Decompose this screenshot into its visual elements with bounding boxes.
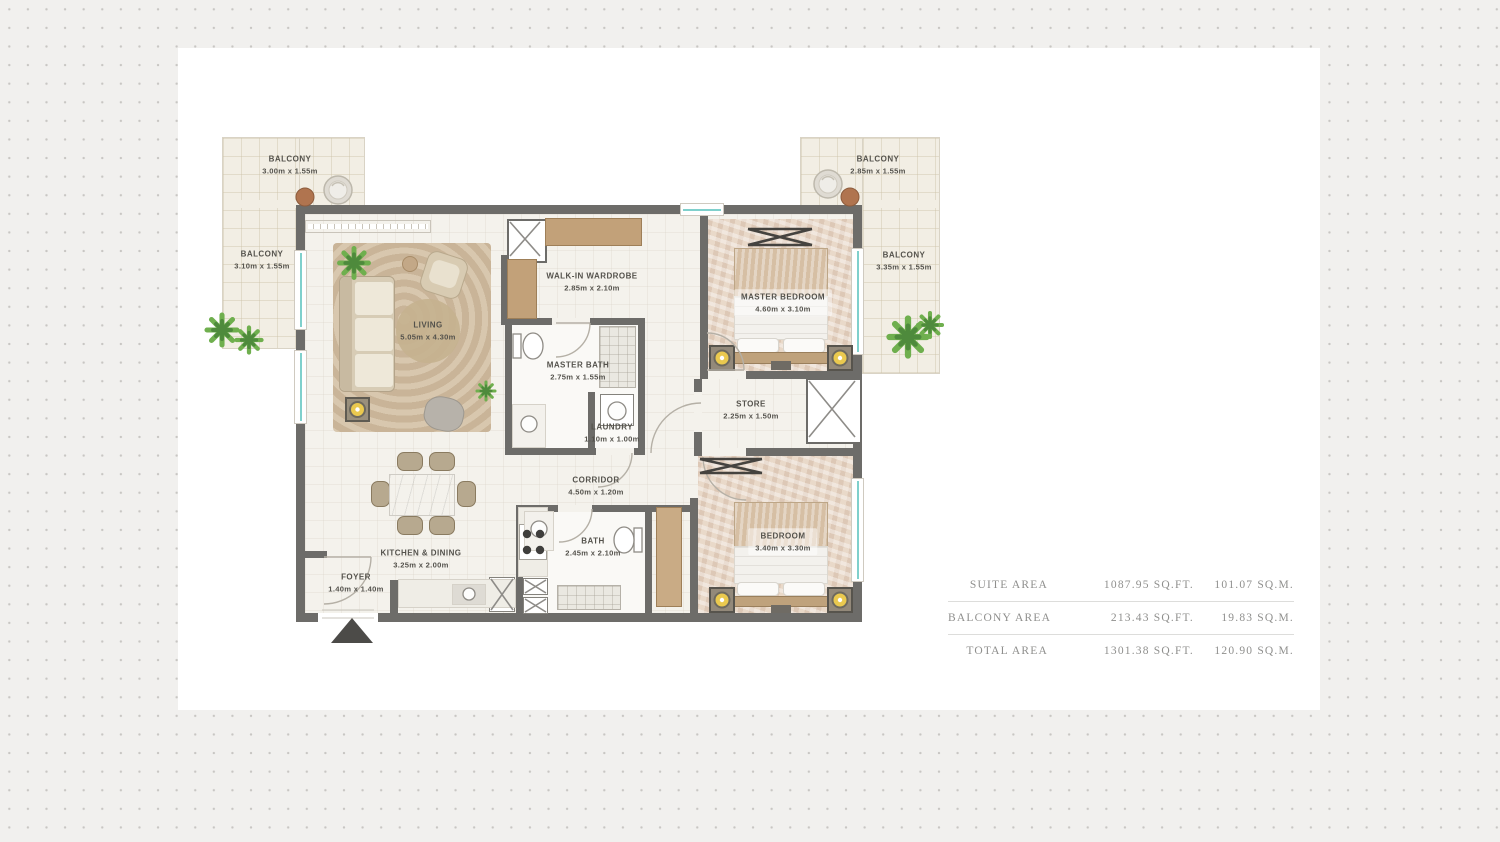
bed-pedestal	[771, 605, 791, 613]
cabinet-box	[523, 597, 548, 614]
sofa-cushion	[354, 317, 394, 352]
room-name: MASTER BEDROOM	[741, 292, 825, 301]
wall	[645, 505, 652, 613]
shower	[557, 585, 621, 610]
duct-shaft	[507, 219, 547, 263]
elevator-shaft	[806, 378, 862, 444]
dining-chair	[429, 516, 455, 535]
room-dims: 3.00m x 1.55m	[262, 165, 317, 176]
nightstand	[709, 345, 735, 371]
room-dims: 2.75m x 1.55m	[547, 371, 610, 382]
dining-table	[389, 474, 455, 516]
balcony-chair-icon	[324, 170, 842, 204]
room-label-foyer: FOYER 1.40m x 1.40m	[328, 571, 383, 594]
wall	[722, 205, 862, 214]
room-name: WALK-IN WARDROBE	[546, 271, 637, 280]
room-label-balcony-3: BALCONY 2.85m x 1.55m	[850, 153, 905, 176]
area-sqft: 1301.38 SQ.FT.	[1048, 645, 1194, 657]
table-row: BALCONY AREA 213.43 SQ.FT. 19.83 SQ.M.	[948, 601, 1294, 634]
nightstand	[827, 587, 853, 613]
pillow	[783, 582, 825, 596]
room-label-bedroom: BEDROOM 3.40m x 3.30m	[748, 528, 817, 555]
room-label-living: LIVING 5.05m x 4.30m	[400, 319, 455, 342]
room-label-balcony-1: BALCONY 3.00m x 1.55m	[262, 153, 317, 176]
room-label-laundry: LAUNDRY 1.10m x 1.00m	[584, 421, 639, 444]
door-opening	[702, 448, 746, 456]
wall	[505, 318, 512, 455]
area-sqm: 19.83 SQ.M.	[1194, 612, 1294, 624]
floor-plan: BALCONY 3.00m x 1.55m BALCONY 3.10m x 1.…	[0, 0, 1500, 842]
balcony-seam	[224, 200, 296, 208]
room-label-balcony-2: BALCONY 3.10m x 1.55m	[234, 248, 289, 271]
table-row: SUITE AREA 1087.95 SQ.FT. 101.07 SQ.M.	[948, 569, 1294, 601]
wall	[690, 498, 698, 613]
table-row: TOTAL AREA 1301.38 SQ.FT. 120.90 SQ.M.	[948, 634, 1294, 667]
room-dims: 2.25m x 1.50m	[723, 410, 778, 421]
area-summary-table: SUITE AREA 1087.95 SQ.FT. 101.07 SQ.M. B…	[948, 569, 1294, 667]
window	[851, 478, 864, 582]
sofa-back	[340, 277, 352, 391]
nightstand	[709, 587, 735, 613]
room-label-store: STORE 2.25m x 1.50m	[723, 398, 778, 421]
room-label-bath: BATH 2.45m x 2.10m	[565, 535, 620, 558]
window	[294, 350, 307, 424]
room-dims: 2.85m x 2.10m	[546, 282, 637, 293]
balcony-slider-door	[305, 220, 431, 233]
room-name: MASTER BATH	[547, 360, 610, 369]
room-name: BALCONY	[269, 154, 312, 163]
room-dims: 1.10m x 1.00m	[584, 433, 639, 444]
wall	[700, 211, 708, 379]
kitchen-sink-unit	[452, 584, 486, 605]
wall	[390, 580, 398, 613]
pouf	[402, 256, 418, 272]
room-label-master-bath: MASTER BATH 2.75m x 1.55m	[547, 359, 610, 382]
room-label-wardrobe: WALK-IN WARDROBE 2.85m x 2.10m	[546, 270, 637, 293]
room-name: STORE	[736, 399, 766, 408]
door-opening	[708, 371, 746, 379]
door-opening	[558, 505, 592, 512]
room-name: BALCONY	[241, 249, 284, 258]
cabinet-box	[523, 578, 548, 595]
door-opening	[694, 392, 702, 432]
area-sqft: 213.43 SQ.FT.	[1048, 612, 1194, 624]
door-opening	[552, 318, 590, 325]
wall	[303, 551, 327, 558]
vanity	[524, 511, 554, 551]
area-sqm: 120.90 SQ.M.	[1194, 645, 1294, 657]
room-name: CORRIDOR	[572, 475, 619, 484]
room-name: LIVING	[413, 320, 442, 329]
dining-chair	[429, 452, 455, 471]
area-label: SUITE AREA	[948, 579, 1048, 591]
room-name: BEDROOM	[761, 531, 806, 540]
room-dims: 4.50m x 1.20m	[568, 486, 623, 497]
sofa	[339, 276, 395, 392]
room-dims: 3.10m x 1.55m	[234, 260, 289, 271]
balcony-seam	[864, 200, 936, 208]
sofa-cushion	[354, 353, 394, 388]
area-sqm: 101.07 SQ.M.	[1194, 579, 1294, 591]
room-dims: 3.40m x 3.30m	[755, 542, 810, 553]
room-name: BALCONY	[883, 250, 926, 259]
room-dims: 4.60m x 3.10m	[741, 303, 825, 314]
room-name: FOYER	[341, 572, 371, 581]
dining-chair	[457, 481, 476, 507]
room-name: BALCONY	[857, 154, 900, 163]
pillow	[783, 338, 825, 353]
room-label-corridor: CORRIDOR 4.50m x 1.20m	[568, 474, 623, 497]
bed-pedestal	[771, 361, 791, 370]
door-opening	[596, 448, 634, 455]
floor-lamp	[345, 397, 370, 422]
nightstand	[827, 345, 853, 371]
dining-chair	[371, 481, 390, 507]
room-dims: 1.40m x 1.40m	[328, 583, 383, 594]
entrance-opening	[318, 613, 378, 622]
room-label-balcony-4: BALCONY 3.35m x 1.55m	[876, 249, 931, 272]
window	[680, 203, 724, 216]
room-dims: 3.35m x 1.55m	[876, 261, 931, 272]
area-label: BALCONY AREA	[948, 612, 1048, 624]
wardrobe-cabinet	[545, 218, 642, 246]
window	[294, 250, 307, 330]
dining-chair	[397, 452, 423, 471]
wardrobe-cabinet	[507, 259, 537, 319]
room-dims: 3.25m x 2.00m	[381, 559, 462, 570]
pillow	[737, 582, 779, 596]
room-label-kitchen: KITCHEN & DINING 3.25m x 2.00m	[381, 547, 462, 570]
room-label-master-bedroom: MASTER BEDROOM 4.60m x 3.10m	[734, 289, 832, 316]
room-name: KITCHEN & DINING	[381, 548, 462, 557]
room-dims: 2.85m x 1.55m	[850, 165, 905, 176]
wall	[296, 205, 680, 214]
room-name: LAUNDRY	[591, 422, 633, 431]
wall	[296, 613, 862, 622]
area-label: TOTAL AREA	[948, 645, 1048, 657]
area-sqft: 1087.95 SQ.FT.	[1048, 579, 1194, 591]
wall	[638, 318, 645, 396]
balcony-table-icon	[296, 188, 859, 206]
room-dims: 5.05m x 4.30m	[400, 331, 455, 342]
pillow	[737, 338, 779, 353]
vanity	[512, 404, 546, 448]
wardrobe-cabinet	[656, 507, 682, 607]
sofa-cushion	[354, 281, 394, 316]
window	[851, 248, 864, 355]
room-name: BATH	[581, 536, 604, 545]
room-dims: 2.45m x 2.10m	[565, 547, 620, 558]
dining-chair	[397, 516, 423, 535]
